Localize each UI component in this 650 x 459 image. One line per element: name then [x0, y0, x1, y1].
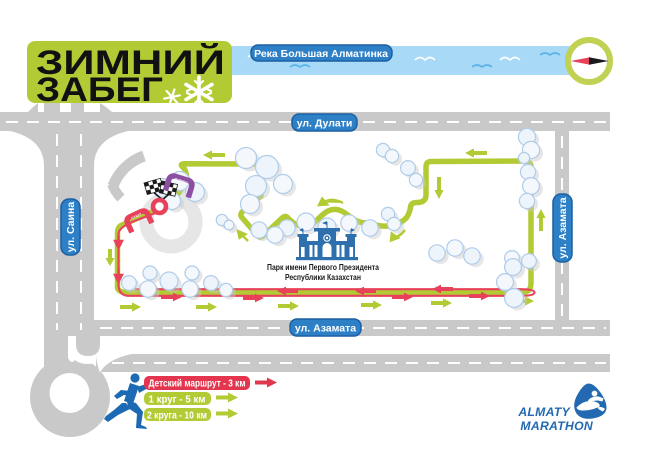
svg-text:ул. Дулати: ул. Дулати	[297, 118, 353, 130]
svg-text:ул. Саина: ул. Саина	[65, 202, 77, 253]
svg-text:Парк имени Первого Президента: Парк имени Первого Президента	[267, 263, 379, 272]
svg-text:ул. Азамата: ул. Азамата	[295, 323, 356, 335]
svg-text:MARATHON: MARATHON	[520, 419, 593, 433]
svg-text:Республики Казахстан: Республики Казахстан	[285, 273, 361, 282]
svg-text:1 круг - 5 км: 1 круг - 5 км	[149, 394, 206, 406]
svg-text:Река Большая Алматинка: Река Большая Алматинка	[254, 48, 388, 60]
svg-text:2 круга - 10 км: 2 круга - 10 км	[147, 411, 207, 422]
svg-text:ул. Азамата: ул. Азамата	[557, 197, 569, 258]
svg-text:ALMATY: ALMATY	[517, 405, 571, 419]
svg-text:Детский маршрут - 3 км: Детский маршрут - 3 км	[149, 378, 246, 390]
svg-text:ЗАБЕГ: ЗАБЕГ	[36, 71, 163, 109]
